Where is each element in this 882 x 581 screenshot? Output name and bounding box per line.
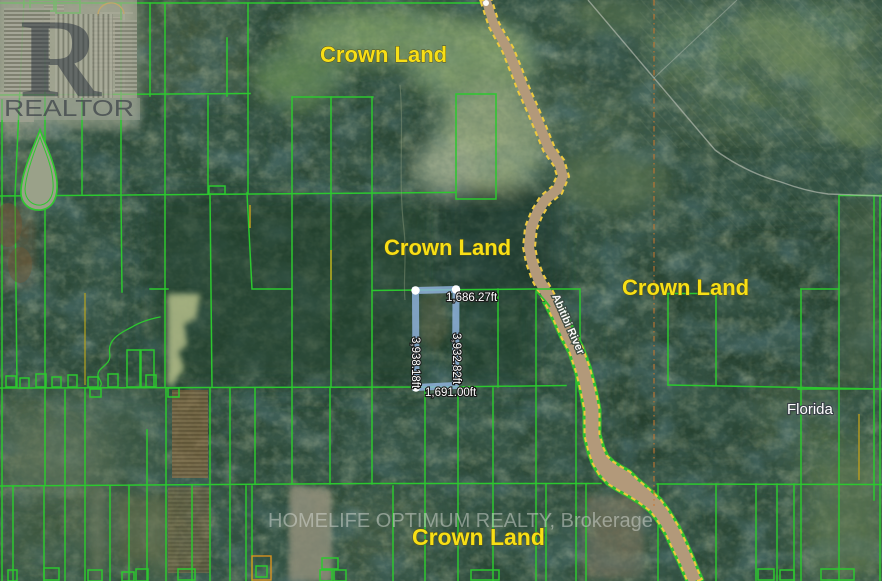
svg-text:Crown Land: Crown Land [320,42,447,67]
svg-text:REALTOR: REALTOR [4,95,134,121]
svg-text:Crown Land: Crown Land [622,275,749,300]
svg-text:Florida: Florida [787,401,834,418]
svg-text:1,691.00ft: 1,691.00ft [425,387,477,399]
svg-text:3,932.82ft: 3,932.82ft [450,333,462,385]
svg-text:HOMELIFE OPTIMUM REALTY, Broke: HOMELIFE OPTIMUM REALTY, Brokerage [268,510,653,532]
svg-text:3,938.18ft: 3,938.18ft [409,337,421,389]
svg-text:Crown Land: Crown Land [384,235,511,260]
svg-text:1,686.27ft: 1,686.27ft [446,292,498,304]
